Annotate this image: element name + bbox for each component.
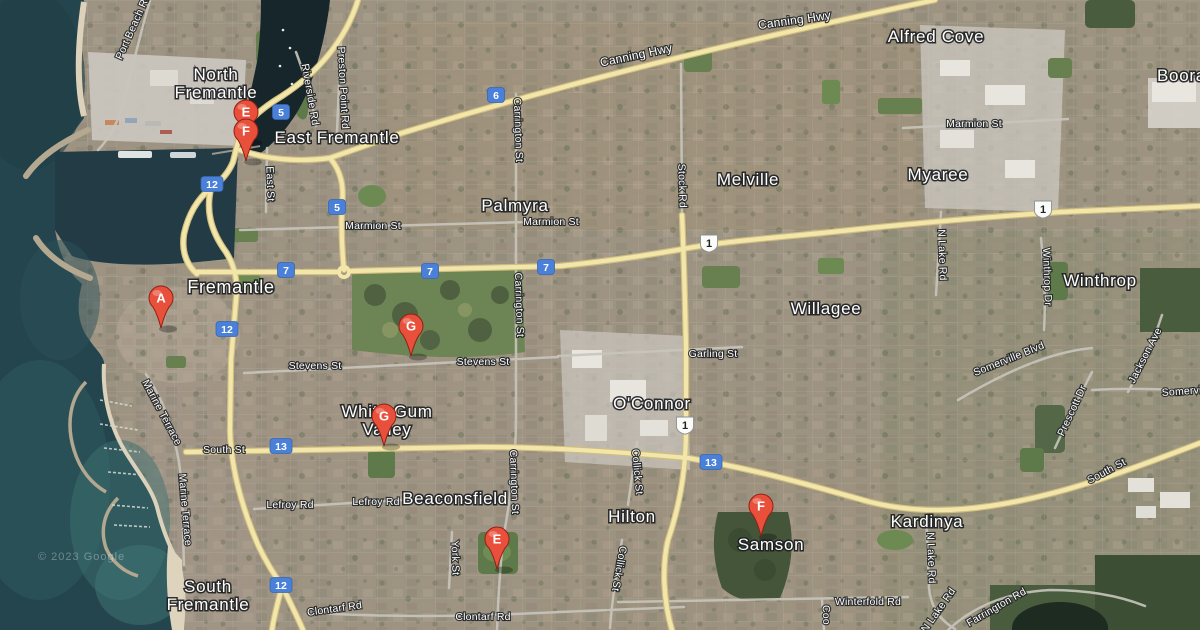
map-attribution: © 2023 Google — [38, 551, 125, 563]
route-shield-13: 13 — [700, 455, 722, 470]
route-shield-5: 5 — [273, 105, 290, 120]
svg-text:7: 7 — [283, 265, 289, 277]
road-label-n-lake-rd: N Lake Rd — [935, 229, 949, 281]
road-label-n-lake-rd: N Lake Rd — [924, 532, 938, 584]
road-label-winterfold-rd: Winterfold Rd — [835, 596, 901, 608]
ship — [170, 152, 196, 158]
route-shield-1: 1 — [677, 417, 694, 434]
road-label-stock-rd: Stock Rd — [675, 164, 689, 209]
road-label-marmion-st: Marmion St — [523, 216, 579, 228]
place-label-palmyra: Palmyra — [481, 196, 548, 215]
route-shield-6: 6 — [488, 88, 505, 103]
svg-text:7: 7 — [543, 262, 549, 274]
marker-letter: G — [379, 409, 389, 424]
satellite-map-canvas[interactable]: © 2023 Google NorthFremantleEast Fremant… — [0, 0, 1200, 630]
road-label-carrington-st: Carrington St — [511, 97, 525, 162]
road-label-east-st: East St — [263, 166, 276, 202]
road-label-marmion-st: Marmion St — [946, 118, 1002, 130]
route-shield-7: 7 — [278, 263, 295, 278]
svg-text:7: 7 — [427, 266, 433, 278]
svg-text:13: 13 — [275, 441, 287, 453]
svg-text:13: 13 — [705, 457, 717, 469]
road-label-winthrop-dr: Winthrop Dr — [1040, 248, 1054, 307]
place-label-fremantle: Fremantle — [187, 277, 274, 297]
place-label-myaree: Myaree — [908, 165, 969, 184]
route-shield-7: 7 — [422, 264, 439, 279]
route-shield-12: 12 — [270, 578, 292, 593]
svg-text:5: 5 — [278, 107, 284, 119]
road-label-lefroy-rd: Lefroy Rd — [352, 496, 399, 508]
svg-text:6: 6 — [493, 90, 499, 102]
svg-text:1: 1 — [682, 420, 688, 432]
place-label-east-fremantle: East Fremantle — [274, 128, 399, 147]
svg-text:1: 1 — [706, 238, 712, 250]
place-label-booragoon: Booragoon — [1157, 66, 1200, 85]
place-label-willagee: Willagee — [791, 299, 862, 318]
place-label-hilton: Hilton — [608, 507, 656, 526]
place-label-beaconsfield: Beaconsfield — [402, 489, 508, 508]
svg-text:1: 1 — [1040, 204, 1046, 216]
route-shield-1: 1 — [701, 235, 718, 252]
place-label-o-connor: O'Connor — [613, 394, 691, 413]
road-label-stevens-st: Stevens St — [289, 360, 342, 372]
marker-letter: E — [493, 532, 502, 547]
ship — [118, 151, 152, 158]
marker-letter: E — [242, 105, 251, 120]
svg-text:5: 5 — [334, 202, 340, 214]
road-label-coo: Coo — [820, 605, 833, 625]
marker-letter: F — [757, 499, 765, 514]
road-label-south-st: South St — [203, 444, 245, 456]
route-shield-12: 12 — [216, 322, 238, 337]
route-shield-1: 1 — [1035, 201, 1052, 218]
road-label-carrington-st: Carrington St — [512, 272, 526, 337]
route-shield-13: 13 — [270, 439, 292, 454]
place-label-alfred-cove: Alfred Cove — [888, 27, 985, 46]
road-label-carrington-st: Carrington St — [507, 449, 521, 514]
svg-text:12: 12 — [275, 580, 287, 592]
road-label-york-st: York St — [448, 540, 461, 575]
road-label-lefroy-rd: Lefroy Rd — [266, 499, 313, 511]
marker-letter: G — [406, 319, 416, 334]
marker-letter: F — [242, 124, 250, 139]
road-label-marmion-st: Marmion St — [345, 220, 401, 232]
place-label-kardinya: Kardinya — [891, 512, 964, 531]
route-shield-12: 12 — [201, 177, 223, 192]
road-label-stevens-st: Stevens St — [457, 356, 510, 368]
route-shield-5: 5 — [329, 200, 346, 215]
svg-text:12: 12 — [221, 324, 233, 336]
place-label-winthrop: Winthrop — [1063, 271, 1137, 290]
marker-letter: A — [156, 291, 166, 306]
road-label-clontarf-rd: Clontarf Rd — [455, 611, 510, 623]
svg-text:12: 12 — [206, 179, 218, 191]
route-shield-7: 7 — [538, 260, 555, 275]
road-label-garling-st: Garling St — [689, 348, 738, 360]
place-label-melville: Melville — [717, 170, 779, 189]
